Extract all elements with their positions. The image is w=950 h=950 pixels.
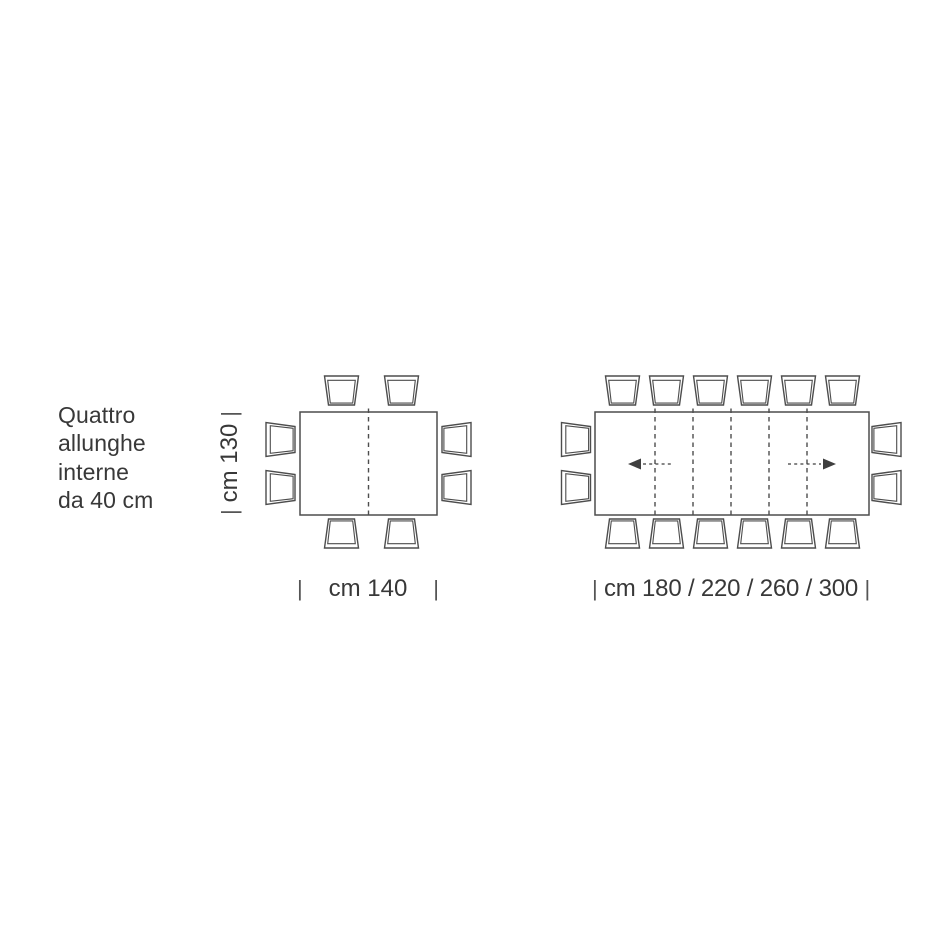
chair (738, 519, 772, 548)
note-line: interne (58, 458, 153, 486)
chair (782, 519, 816, 548)
dimension-value: cm 180 / 220 / 260 / 300 (604, 575, 858, 603)
note-line: allunghe (58, 429, 153, 457)
table-size-diagram-page: Quattro allunghe interne da 40 cm | cm 1… (0, 0, 950, 950)
chair (325, 519, 359, 548)
dimension-value: cm 130 (216, 424, 244, 503)
chair (826, 519, 860, 548)
chair (782, 376, 816, 405)
chair (385, 376, 419, 405)
chair (694, 376, 728, 405)
chair (325, 376, 359, 405)
chair (650, 519, 684, 548)
chair (606, 519, 640, 548)
chair (562, 471, 591, 505)
chair (872, 471, 901, 505)
chair (562, 423, 591, 457)
dimension-value: cm 140 (329, 575, 408, 603)
closed-table-diagram (260, 368, 475, 558)
extended-table-diagram (555, 368, 905, 558)
chair (650, 376, 684, 405)
chair (694, 519, 728, 548)
dimension-tick: | (433, 576, 439, 602)
extended-width-dimension: | cm 180 / 220 / 260 / 300 | (592, 574, 870, 604)
chair (266, 471, 295, 505)
dimension-tick: | (297, 576, 303, 602)
dimension-tick: | (217, 411, 243, 417)
dimension-tick: | (217, 509, 243, 515)
chair (606, 376, 640, 405)
note-line: Quattro (58, 401, 153, 429)
chair (738, 376, 772, 405)
chair (872, 423, 901, 457)
dimension-tick: | (864, 576, 870, 602)
closed-width-dimension: | cm 140 | (297, 574, 439, 604)
chair (266, 423, 295, 457)
chair (826, 376, 860, 405)
note-quattro-allunghe: Quattro allunghe interne da 40 cm (58, 401, 153, 515)
note-line: da 40 cm (58, 486, 153, 514)
chair (442, 423, 471, 457)
chair (442, 471, 471, 505)
chair (385, 519, 419, 548)
closed-depth-dimension: | cm 130 | (217, 411, 243, 515)
dimension-tick: | (592, 576, 598, 602)
